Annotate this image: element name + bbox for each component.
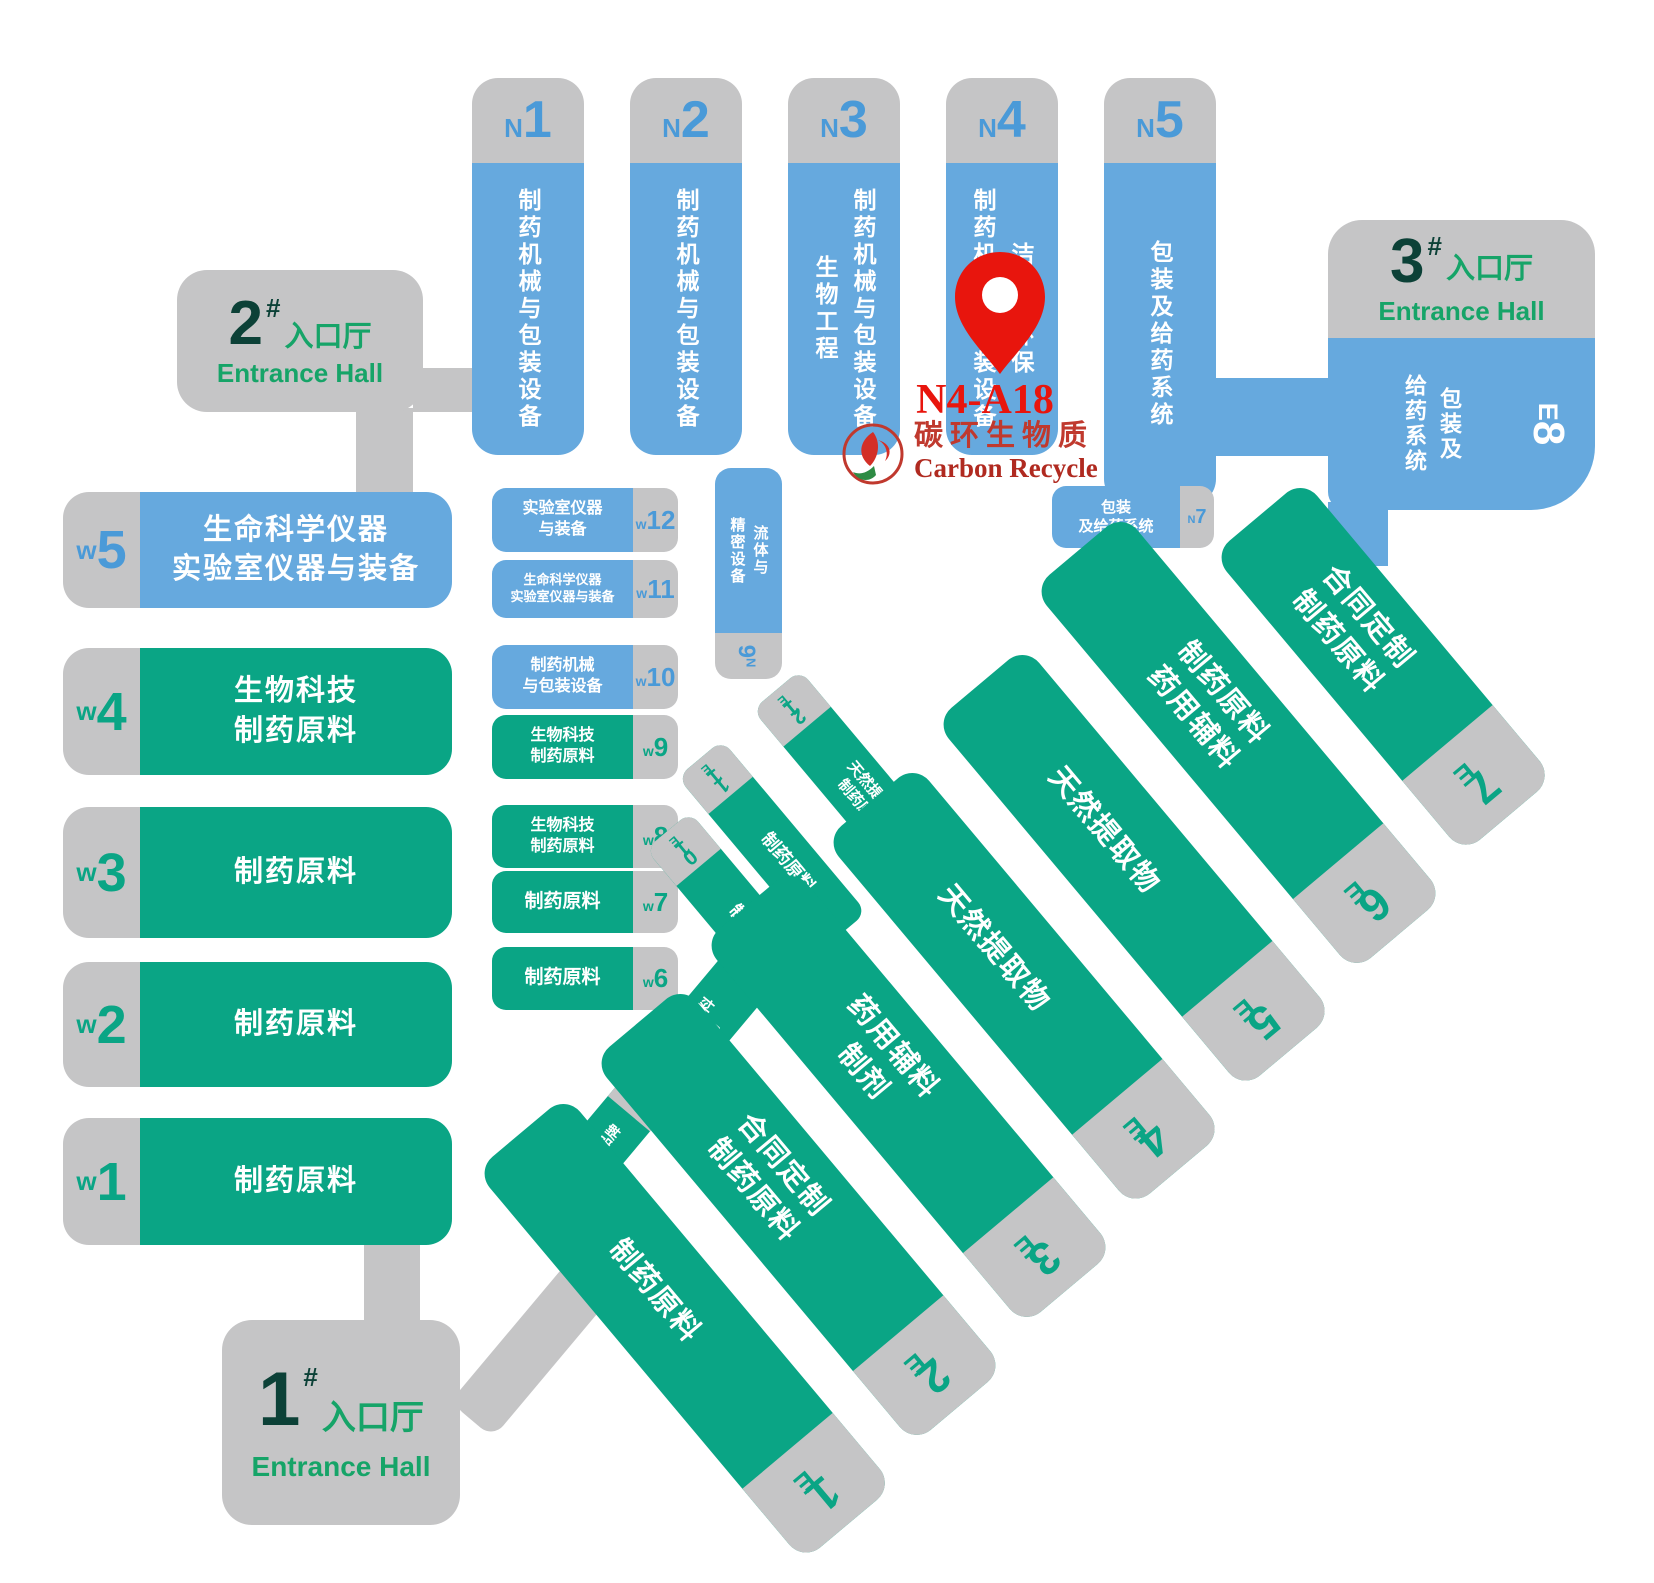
- hall-w4-label: 生物科技制药原料: [140, 648, 452, 775]
- entrance-2-title: 2 # 入口厅: [229, 293, 372, 355]
- hall-w4-code: w4: [63, 648, 140, 775]
- entrance-1-cn-label: 入口厅: [322, 1390, 424, 1439]
- hall-w2-label: 制药原料: [140, 962, 452, 1087]
- hall-w11-code: w11: [633, 560, 678, 618]
- connector-n5-e8: [1216, 378, 1334, 456]
- hall-w6: 制药原料 w6: [492, 947, 678, 1010]
- hall-w3: w3 制药原料: [63, 807, 452, 938]
- hall-w9-label: 生物科技制药原料: [492, 715, 633, 779]
- location-pin-icon: [948, 248, 1052, 385]
- hall-w7-label: 制药原料: [492, 871, 633, 933]
- booth-code-label: N4-A18: [870, 376, 1100, 424]
- hall-n6-line1: 流体与: [750, 517, 771, 585]
- hall-w11: 生命科学仪器实验室仪器与装备 w11: [492, 560, 678, 618]
- carbon-recycle-logo-icon: [840, 420, 906, 497]
- hall-w4: w4 生物科技制药原料: [63, 648, 452, 775]
- entrance-2-hash: #: [266, 293, 280, 324]
- hall-w6-label: 制药原料: [492, 947, 633, 1010]
- hall-w1: w1 制药原料: [63, 1118, 452, 1245]
- hall-w1-label: 制药原料: [140, 1118, 452, 1245]
- entrance-2-cn-label: 入口厅: [284, 313, 371, 355]
- hall-e8-line1: 包装及: [1433, 374, 1465, 474]
- entrance-hall-2: 2 # 入口厅 Entrance Hall: [177, 270, 423, 412]
- hall-n2-code: N2: [630, 78, 742, 163]
- hall-n6: 流体与精密设备: [715, 468, 782, 633]
- hall-e8-label: 包装及 给药系统: [1328, 338, 1535, 510]
- hall-e8-line2: 给药系统: [1398, 374, 1430, 474]
- entrance-3-en-label: Entrance Hall: [1378, 296, 1544, 327]
- entrance-3-cn-label: 入口厅: [1446, 245, 1533, 287]
- hall-w1-code: w1: [63, 1118, 140, 1245]
- entrance-1-number: 1: [258, 1362, 300, 1438]
- hall-n2-label: 制药机械与包装设备: [630, 163, 742, 455]
- hall-n6-line2: 精密设备: [727, 517, 748, 585]
- hall-w9-code: w9: [633, 715, 678, 779]
- connector-entrance2-w5: [356, 408, 413, 496]
- hall-w12-label: 实验室仪器与装备: [492, 488, 633, 552]
- hall-w8: 生物科技制药原料 w8: [492, 805, 678, 868]
- hall-w2-code: w2: [63, 962, 140, 1087]
- hall-n1: N1 制药机械与包装设备: [472, 78, 584, 455]
- hall-n1-code: N1: [472, 78, 584, 163]
- connector-w1-entrance1: [364, 1243, 420, 1323]
- hall-n1-label: 制药机械与包装设备: [472, 163, 584, 455]
- hall-w12: 实验室仪器与装备 w12: [492, 488, 678, 552]
- entrance-3-number: 3: [1390, 231, 1424, 293]
- hall-n3-code: N3: [788, 78, 900, 163]
- hall-e8-code: E8: [1523, 403, 1573, 446]
- hall-n6-code: NN66: [715, 633, 782, 679]
- entrance-1-en-label: Entrance Hall: [252, 1451, 431, 1483]
- entrance-1-title: 1 # 入口厅: [258, 1362, 424, 1439]
- entrance-3-title: 3 # 入口厅: [1390, 231, 1533, 293]
- hall-w2: w2 制药原料: [63, 962, 452, 1087]
- hall-w11-label: 生命科学仪器实验室仪器与装备: [492, 560, 633, 618]
- hall-n5-label: 包装及给药系统: [1104, 163, 1216, 505]
- hall-n7-line1: 包装: [1101, 498, 1131, 518]
- hall-w3-label: 制药原料: [140, 807, 452, 938]
- hall-n4-code: N4: [946, 78, 1058, 163]
- entrance-1-hash: #: [303, 1362, 317, 1393]
- hall-n5-code: N5: [1104, 78, 1216, 163]
- entrance-2-en-label: Entrance Hall: [217, 358, 383, 389]
- logo-en-text: Carbon Recycle: [914, 452, 1098, 484]
- hall-e8: 包装及 给药系统 E8: [1328, 338, 1595, 510]
- entrance-3-hash: #: [1428, 231, 1442, 262]
- hall-w3-code: w3: [63, 807, 140, 938]
- logo-cn-text: 碳环生物质: [914, 420, 1098, 452]
- hall-w5: w5 生命科学仪器实验室仪器与装备: [63, 492, 452, 608]
- hall-w10-code: w10: [633, 645, 678, 709]
- hall-w12-code: w12: [633, 488, 678, 552]
- hall-w8-label: 生物科技制药原料: [492, 805, 633, 868]
- entrance-hall-1: 1 # 入口厅 Entrance Hall: [222, 1320, 460, 1525]
- hall-w7: 制药原料 w7: [492, 871, 678, 933]
- hall-n5: N5 包装及给药系统: [1104, 78, 1216, 505]
- hall-n2: N2 制药机械与包装设备: [630, 78, 742, 455]
- hall-n7-code: N7: [1180, 486, 1214, 548]
- hall-w9: 生物科技制药原料 w9: [492, 715, 678, 779]
- hall-w10-label: 制药机械与包装设备: [492, 645, 633, 709]
- exhibition-floor-map: 2 # 入口厅 Entrance Hall 1 # 入口厅 Entrance H…: [0, 0, 1654, 1583]
- hall-w5-code: w5: [63, 492, 140, 608]
- hall-w10: 制药机械与包装设备 w10: [492, 645, 678, 709]
- entrance-hall-3: 3 # 入口厅 Entrance Hall: [1328, 220, 1595, 338]
- entrance-2-number: 2: [229, 293, 263, 355]
- company-logo: 碳环生物质 Carbon Recycle: [840, 420, 1098, 497]
- hall-w5-label: 生命科学仪器实验室仪器与装备: [140, 492, 452, 608]
